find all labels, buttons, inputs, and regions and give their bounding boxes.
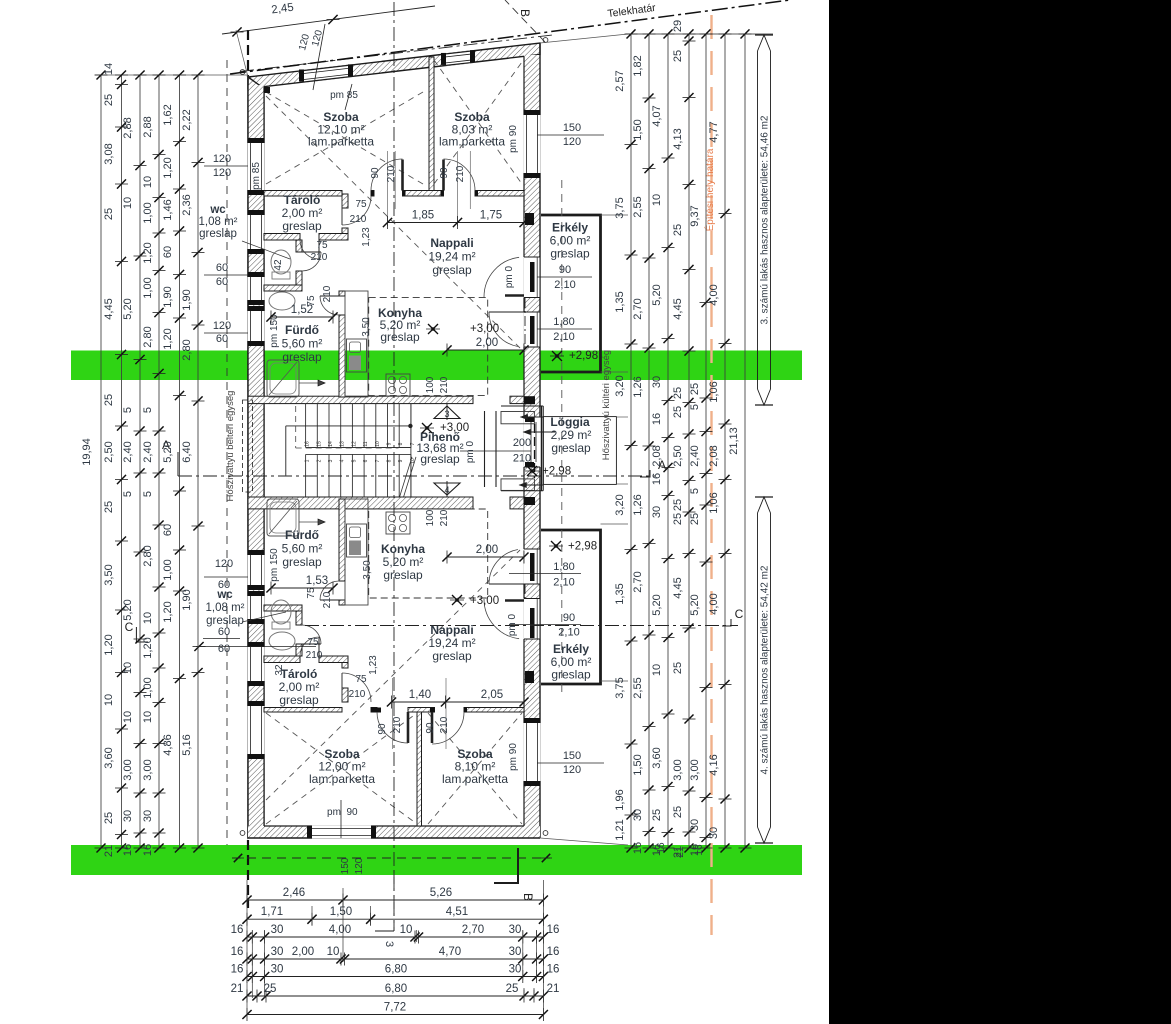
svg-text:1,46: 1,46	[162, 199, 174, 220]
svg-text:29: 29	[672, 20, 684, 32]
svg-text:5,20: 5,20	[689, 594, 701, 615]
svg-text:greslap: greslap	[383, 568, 423, 582]
svg-text:4,00: 4,00	[708, 593, 720, 614]
svg-text:Nappali: Nappali	[430, 236, 473, 250]
svg-text:1,08 m²: 1,08 m²	[206, 602, 245, 614]
svg-text:greslap: greslap	[551, 441, 591, 455]
svg-text:+2,98: +2,98	[568, 541, 597, 553]
svg-text:pm 0: pm 0	[504, 265, 515, 288]
svg-text:3,60: 3,60	[651, 747, 663, 768]
svg-text:4,86: 4,86	[162, 734, 174, 755]
svg-text:4,00: 4,00	[329, 924, 351, 936]
svg-text:lam.parketta: lam.parketta	[308, 135, 374, 149]
svg-text:16: 16	[122, 844, 134, 856]
svg-text:75: 75	[355, 199, 367, 210]
svg-text:150: 150	[340, 857, 351, 874]
svg-text:greslap: greslap	[551, 668, 591, 682]
svg-text:4,45: 4,45	[103, 298, 115, 319]
svg-text:25: 25	[103, 501, 115, 513]
svg-text:42: 42	[273, 259, 284, 271]
svg-text:3,20: 3,20	[614, 375, 626, 396]
svg-text:210: 210	[455, 165, 466, 182]
svg-text:5,20: 5,20	[651, 594, 663, 615]
svg-text:3,20: 3,20	[614, 494, 626, 515]
svg-text:210: 210	[349, 689, 366, 700]
svg-text:25: 25	[672, 224, 684, 236]
svg-text:2,05: 2,05	[481, 689, 503, 701]
svg-text:5: 5	[689, 488, 701, 494]
svg-text:60: 60	[216, 276, 228, 288]
svg-text:10: 10	[651, 664, 663, 676]
svg-text:+3,00: +3,00	[440, 422, 469, 434]
svg-text:2,40: 2,40	[122, 441, 134, 462]
svg-text:8: 8	[398, 442, 404, 445]
svg-text:210: 210	[439, 376, 450, 393]
svg-text:19,94: 19,94	[81, 438, 93, 466]
svg-text:2,80: 2,80	[142, 545, 154, 566]
svg-text:30: 30	[122, 810, 134, 822]
svg-text:lam.parketta: lam.parketta	[439, 135, 505, 149]
svg-text:120: 120	[213, 320, 231, 332]
svg-text:2,88: 2,88	[122, 117, 134, 138]
svg-text:16: 16	[547, 946, 560, 958]
svg-text:1,35: 1,35	[614, 291, 626, 312]
svg-text:25: 25	[506, 983, 519, 995]
svg-text:4: 4	[340, 459, 346, 462]
svg-text:greslap: greslap	[432, 263, 472, 277]
svg-text:120: 120	[215, 558, 233, 570]
svg-text:210: 210	[306, 650, 323, 661]
svg-text:30: 30	[142, 810, 154, 822]
svg-text:2,55: 2,55	[632, 196, 644, 217]
svg-text:5: 5	[689, 404, 701, 410]
svg-text:25: 25	[103, 208, 115, 220]
svg-text:Löggia: Löggia	[550, 415, 590, 429]
svg-text:120: 120	[213, 153, 231, 165]
svg-text:90: 90	[377, 723, 388, 735]
svg-text:5: 5	[142, 491, 154, 497]
svg-text:4. számú lakás hasznos alapter: 4. számú lakás hasznos alapterülete: 54,…	[760, 565, 771, 774]
svg-text:4,45: 4,45	[672, 577, 684, 598]
svg-text:5,20: 5,20	[122, 599, 134, 620]
svg-text:75: 75	[307, 637, 319, 648]
svg-text:Hőszivattyú kültéri egység: Hőszivattyú kültéri egység	[601, 350, 612, 460]
svg-text:1,80: 1,80	[553, 316, 574, 328]
svg-text:30: 30	[651, 376, 663, 388]
svg-text:1,52: 1,52	[291, 304, 313, 316]
svg-text:150: 150	[563, 122, 581, 134]
svg-text:60: 60	[216, 333, 228, 345]
svg-text:5,26: 5,26	[430, 887, 452, 899]
svg-text:greslap: greslap	[282, 219, 322, 233]
svg-text:3,50: 3,50	[362, 560, 373, 580]
svg-text:5,20 m²: 5,20 m²	[383, 555, 424, 569]
svg-text:1,20: 1,20	[142, 637, 154, 658]
svg-text:3,00: 3,00	[689, 759, 701, 780]
svg-text:30: 30	[271, 946, 284, 958]
svg-text:2,50: 2,50	[103, 441, 115, 462]
svg-text:16: 16	[651, 473, 663, 485]
svg-text:21: 21	[675, 846, 686, 858]
svg-text:13: 13	[340, 441, 346, 447]
svg-text:Tároló: Tároló	[284, 193, 321, 207]
svg-text:9,37: 9,37	[689, 205, 701, 226]
svg-text:pm 85: pm 85	[330, 90, 358, 101]
svg-text:210: 210	[311, 252, 328, 263]
svg-text:1,35: 1,35	[614, 583, 626, 604]
svg-text:1,20: 1,20	[142, 242, 154, 263]
svg-text:3,60: 3,60	[103, 747, 115, 768]
svg-text:7: 7	[375, 459, 381, 462]
svg-text:1,96: 1,96	[614, 789, 626, 810]
svg-text:2,00: 2,00	[292, 946, 314, 958]
svg-text:16: 16	[651, 413, 663, 425]
svg-text:1,26: 1,26	[632, 494, 644, 515]
svg-text:1,75: 1,75	[480, 210, 502, 222]
svg-text:60: 60	[218, 626, 230, 638]
svg-text:210: 210	[386, 165, 397, 182]
svg-text:10: 10	[327, 946, 340, 958]
svg-text:25: 25	[672, 513, 684, 525]
svg-text:30: 30	[271, 924, 284, 936]
svg-text:C: C	[125, 620, 134, 634]
svg-text:3,50: 3,50	[361, 317, 372, 337]
svg-text:5: 5	[122, 407, 134, 413]
svg-text:4,13: 4,13	[672, 128, 684, 149]
svg-text:210: 210	[513, 453, 531, 465]
svg-text:pm 0: pm 0	[507, 613, 518, 636]
svg-text:6,80: 6,80	[385, 964, 407, 976]
svg-text:5,16: 5,16	[181, 734, 193, 755]
svg-text:2,08: 2,08	[651, 445, 663, 466]
svg-text:90: 90	[425, 722, 436, 734]
svg-text:1,00: 1,00	[142, 677, 154, 698]
svg-text:5,20: 5,20	[122, 298, 134, 319]
svg-text:2,88: 2,88	[142, 116, 154, 137]
svg-text:3,00: 3,00	[672, 759, 684, 780]
svg-text:5,60 m²: 5,60 m²	[282, 337, 323, 351]
svg-text:1,00: 1,00	[142, 202, 154, 223]
svg-text:1,50: 1,50	[632, 754, 644, 775]
svg-text:3: 3	[328, 459, 334, 462]
svg-text:30: 30	[509, 924, 522, 936]
svg-text:4,07: 4,07	[651, 105, 663, 126]
svg-text:Nappali: Nappali	[430, 623, 473, 637]
svg-text:210: 210	[350, 214, 367, 225]
svg-text:1,62: 1,62	[162, 104, 174, 125]
svg-text:6,00 m²: 6,00 m²	[550, 234, 591, 248]
svg-text:3,00: 3,00	[142, 759, 154, 780]
svg-text:1,21: 1,21	[614, 819, 626, 840]
svg-text:25: 25	[672, 406, 684, 418]
svg-text:210: 210	[322, 285, 333, 302]
svg-text:2,40: 2,40	[689, 445, 701, 466]
svg-text:30: 30	[651, 506, 663, 518]
svg-text:2: 2	[316, 459, 322, 462]
svg-text:pm 150: pm 150	[269, 548, 280, 582]
svg-text:4,70: 4,70	[439, 946, 461, 958]
svg-text:lam.parketta: lam.parketta	[309, 772, 375, 786]
svg-text:90: 90	[370, 167, 381, 179]
svg-text:25: 25	[689, 383, 701, 395]
svg-text:16: 16	[231, 924, 244, 936]
svg-text:100: 100	[425, 376, 436, 393]
svg-text:10: 10	[375, 441, 381, 447]
svg-text:120: 120	[213, 167, 231, 179]
svg-text:4,16: 4,16	[708, 754, 720, 775]
svg-text:21: 21	[231, 983, 244, 995]
svg-text:+2,98: +2,98	[542, 466, 571, 478]
svg-text:25: 25	[672, 662, 684, 674]
svg-text:32: 32	[274, 664, 285, 676]
svg-text:30: 30	[632, 809, 644, 821]
svg-text:2,00 m²: 2,00 m²	[279, 680, 320, 694]
svg-text:10: 10	[122, 711, 134, 723]
svg-text:1,40: 1,40	[409, 689, 431, 701]
svg-text:30: 30	[509, 946, 522, 958]
svg-text:1,23: 1,23	[361, 227, 372, 247]
svg-text:5,20: 5,20	[651, 284, 663, 305]
svg-text:60: 60	[162, 524, 174, 536]
svg-text:B: B	[518, 9, 532, 17]
svg-text:2,00: 2,00	[476, 544, 498, 556]
svg-text:1,00: 1,00	[162, 559, 174, 580]
svg-text:2,10: 2,10	[553, 331, 574, 343]
svg-text:100: 100	[425, 509, 436, 526]
svg-text:greslap: greslap	[420, 452, 460, 466]
svg-text:1,71: 1,71	[261, 906, 283, 918]
svg-text:5: 5	[122, 491, 134, 497]
svg-text:10: 10	[142, 176, 154, 188]
svg-text:210: 210	[439, 509, 450, 526]
svg-text:90: 90	[563, 612, 575, 624]
svg-text:2,55: 2,55	[632, 677, 644, 698]
svg-text:150: 150	[563, 750, 581, 762]
svg-text:1: 1	[305, 459, 311, 462]
svg-text:C: C	[735, 607, 744, 621]
svg-text:1,90: 1,90	[162, 286, 174, 307]
svg-text:1,53: 1,53	[306, 575, 328, 587]
svg-text:1,20: 1,20	[103, 634, 115, 655]
svg-text:greslap: greslap	[279, 693, 319, 707]
svg-text:1,90: 1,90	[181, 589, 193, 610]
svg-text:30: 30	[708, 827, 720, 839]
svg-text:Tároló: Tároló	[281, 667, 318, 681]
svg-text:75: 75	[316, 240, 328, 251]
svg-text:Fürdő: Fürdő	[285, 528, 319, 542]
svg-text:25: 25	[689, 513, 701, 525]
svg-text:120: 120	[563, 136, 581, 148]
svg-text:90: 90	[439, 167, 450, 179]
svg-text:greslap: greslap	[199, 228, 237, 240]
svg-text:21,13: 21,13	[728, 427, 740, 455]
svg-text:wc: wc	[209, 204, 226, 216]
svg-text:19,24 m²: 19,24 m²	[428, 636, 475, 650]
svg-text:16: 16	[547, 964, 560, 976]
svg-text:14: 14	[103, 63, 115, 75]
svg-text:25: 25	[103, 394, 115, 406]
svg-text:1,20: 1,20	[162, 157, 174, 178]
svg-text:9: 9	[387, 442, 393, 445]
svg-text:25: 25	[103, 94, 115, 106]
svg-text:210: 210	[392, 716, 403, 733]
svg-text:2,80: 2,80	[142, 326, 154, 347]
svg-text:3: 3	[383, 941, 395, 947]
svg-text:5: 5	[142, 407, 154, 413]
svg-text:1,06: 1,06	[708, 492, 720, 513]
svg-text:2,10: 2,10	[554, 279, 575, 291]
svg-text:2,50: 2,50	[672, 445, 684, 466]
svg-text:16: 16	[231, 964, 244, 976]
svg-text:10: 10	[651, 194, 663, 206]
svg-text:60: 60	[218, 643, 230, 655]
svg-text:8: 8	[387, 459, 393, 462]
svg-text:Építési hely határa: Építési hely határa	[703, 148, 716, 231]
svg-text:+3,00: +3,00	[470, 595, 499, 607]
svg-text:5: 5	[351, 459, 357, 462]
svg-text:15: 15	[316, 441, 322, 447]
svg-text:2,36: 2,36	[181, 194, 193, 215]
svg-text:30: 30	[509, 964, 522, 976]
svg-text:3,75: 3,75	[614, 677, 626, 698]
svg-text:1,23: 1,23	[368, 655, 379, 675]
svg-text:greslap: greslap	[432, 649, 472, 663]
svg-text:pm 90: pm 90	[508, 743, 519, 771]
svg-text:12: 12	[351, 441, 357, 447]
svg-text:greslap: greslap	[282, 555, 322, 569]
svg-text:5,60 m²: 5,60 m²	[282, 542, 323, 556]
svg-text:+2,98: +2,98	[569, 350, 598, 362]
svg-text:1,50: 1,50	[330, 906, 352, 918]
svg-text:Erkély: Erkély	[552, 221, 588, 235]
svg-text:Fürdő: Fürdő	[285, 323, 319, 337]
svg-text:10: 10	[122, 197, 134, 209]
svg-text:pm 0: pm 0	[465, 440, 476, 463]
svg-text:2,00: 2,00	[476, 337, 498, 349]
svg-text:1,90: 1,90	[181, 289, 193, 310]
svg-text:2,10: 2,10	[558, 627, 579, 639]
svg-text:2,00 m²: 2,00 m²	[282, 206, 323, 220]
svg-text:2,08: 2,08	[708, 445, 720, 466]
svg-text:30: 30	[689, 819, 701, 831]
svg-text:60: 60	[218, 579, 230, 591]
svg-text:3,50: 3,50	[103, 564, 115, 585]
svg-text:6,80: 6,80	[385, 983, 407, 995]
svg-text:1,08 m²: 1,08 m²	[199, 216, 238, 228]
svg-text:210: 210	[322, 591, 333, 608]
svg-text:1,50: 1,50	[632, 119, 644, 140]
svg-text:Hőszivattyú beltéri egység: Hőszivattyú beltéri egység	[225, 391, 236, 502]
svg-text:1,20: 1,20	[162, 328, 174, 349]
svg-text:25: 25	[264, 983, 277, 995]
svg-text:3,08: 3,08	[103, 143, 115, 164]
svg-text:14: 14	[328, 441, 334, 447]
svg-text:6: 6	[363, 459, 369, 462]
svg-text:21: 21	[547, 983, 560, 995]
svg-text:1,80: 1,80	[553, 561, 574, 573]
svg-text:11: 11	[363, 441, 369, 446]
svg-text:25: 25	[651, 809, 663, 821]
svg-text:2,70: 2,70	[462, 924, 484, 936]
svg-text:lam.parketta: lam.parketta	[442, 772, 508, 786]
svg-text:greslap: greslap	[282, 350, 322, 364]
svg-text:3,00: 3,00	[122, 759, 134, 780]
svg-text:pm 90: pm 90	[508, 125, 519, 153]
svg-text:6,40: 6,40	[181, 441, 193, 462]
svg-text:4,45: 4,45	[672, 298, 684, 319]
svg-text:120: 120	[563, 764, 581, 776]
svg-text:1,85: 1,85	[412, 210, 434, 222]
svg-text:2,70: 2,70	[632, 571, 644, 592]
svg-text:4,00: 4,00	[708, 284, 720, 305]
svg-text:16: 16	[656, 842, 667, 854]
svg-text:pm: pm	[327, 807, 341, 818]
svg-text:10: 10	[142, 612, 154, 624]
svg-text:75: 75	[306, 587, 317, 599]
svg-text:greslap: greslap	[550, 247, 590, 261]
svg-text:2,46: 2,46	[283, 887, 305, 899]
svg-text:16: 16	[231, 946, 244, 958]
svg-text:5,20: 5,20	[162, 441, 174, 462]
svg-text:3. számú lakás hasznos alapter: 3. számú lakás hasznos alapterülete: 54,…	[760, 115, 771, 324]
svg-text:200: 200	[513, 437, 531, 449]
svg-text:16: 16	[142, 844, 154, 856]
svg-text:2,10: 2,10	[553, 577, 574, 589]
svg-text:1,06: 1,06	[708, 381, 720, 402]
svg-text:1,82: 1,82	[632, 55, 644, 76]
svg-text:pm 85: pm 85	[251, 162, 262, 190]
svg-text:10: 10	[142, 711, 154, 723]
svg-text:25: 25	[672, 806, 684, 818]
svg-text:7,72: 7,72	[384, 1002, 406, 1014]
svg-text:4,77: 4,77	[708, 121, 720, 142]
svg-text:16: 16	[694, 844, 705, 856]
svg-text:10: 10	[122, 662, 134, 674]
svg-text:210: 210	[439, 716, 450, 733]
svg-text:2,57: 2,57	[614, 70, 626, 91]
svg-text:1,26: 1,26	[632, 376, 644, 397]
svg-text:16: 16	[305, 441, 311, 447]
svg-text:60: 60	[162, 246, 174, 258]
svg-text:19,24 m²: 19,24 m²	[428, 250, 475, 264]
svg-text:10: 10	[103, 694, 115, 706]
svg-text:Konyha: Konyha	[381, 542, 425, 556]
svg-text:10: 10	[400, 924, 413, 936]
svg-text:4,51: 4,51	[446, 906, 468, 918]
svg-text:60: 60	[216, 262, 228, 274]
svg-text:90: 90	[346, 807, 358, 818]
svg-text:2,22: 2,22	[181, 109, 193, 130]
svg-text:30: 30	[271, 964, 284, 976]
svg-text:2,80: 2,80	[181, 339, 193, 360]
svg-text:greslap: greslap	[380, 330, 420, 344]
svg-text:2,29 m²: 2,29 m²	[551, 428, 592, 442]
svg-text:25: 25	[672, 50, 684, 62]
svg-text:25: 25	[103, 812, 115, 824]
svg-text:25: 25	[672, 499, 684, 511]
svg-text:90: 90	[559, 264, 571, 276]
svg-text:2,70: 2,70	[632, 298, 644, 319]
svg-text:21: 21	[103, 845, 115, 857]
svg-text:1,20: 1,20	[162, 601, 174, 622]
svg-text:2,40: 2,40	[142, 441, 154, 462]
svg-text:1,00: 1,00	[142, 277, 154, 298]
svg-text:120: 120	[354, 857, 365, 874]
svg-text:3,75: 3,75	[614, 197, 626, 218]
svg-text:9: 9	[398, 459, 404, 462]
svg-text:16: 16	[632, 842, 644, 854]
svg-text:75: 75	[355, 674, 367, 685]
